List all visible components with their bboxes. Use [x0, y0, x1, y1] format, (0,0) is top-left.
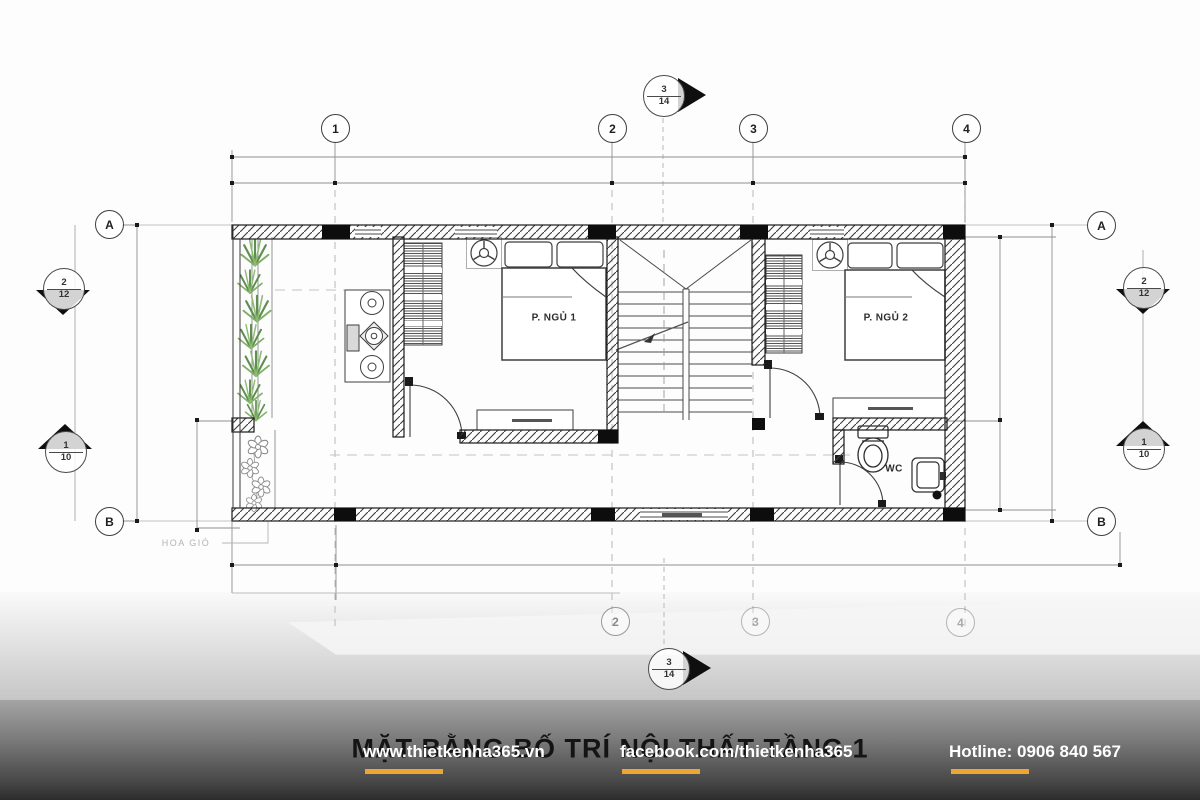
annotation-hoa-gio: HOA GIÓ: [162, 538, 211, 548]
room-label-bedroom2: P. NGỦ 2: [864, 313, 909, 324]
bedroom1-bed: [502, 242, 606, 360]
footer-hotline-text[interactable]: Hotline: 0906 840 567: [949, 742, 1121, 762]
footer-hotline-underline: [951, 769, 1029, 774]
bedroom2-fan: [813, 240, 848, 271]
logo-block: TKN 365 THIETKENHA365.VN HOTLINE:0906840…: [0, 690, 340, 800]
section-number: 3: [666, 657, 671, 669]
footer-facebook-underline: [622, 769, 700, 774]
section-number: 3: [661, 84, 666, 96]
wc-toilet: [858, 426, 888, 472]
grid-bubble-col-4-bottom: 4: [946, 608, 975, 637]
floor-plan-drawing: [0, 0, 1200, 700]
section-sheet: 14: [664, 669, 675, 681]
grid-bubble-col-3: 3: [739, 114, 768, 143]
grid-bubble-row-a-left: A: [95, 210, 124, 239]
grid-bubble-col-1: 1: [321, 114, 350, 143]
section-sheet: 10: [1139, 449, 1150, 461]
bedroom1-door: [405, 377, 466, 439]
dimension-dots: [135, 155, 1122, 567]
bedroom2-door: [764, 360, 824, 420]
section-number: 2: [61, 277, 66, 289]
bedroom2-cabinet: [833, 398, 945, 418]
grid-bubble-row-a-right: A: [1087, 211, 1116, 240]
grid-bubble-row-b-left: B: [95, 507, 124, 536]
grid-bubble-col-2-bottom: 2: [601, 607, 630, 636]
grid-bubble-col-2: 2: [598, 114, 627, 143]
section-number: 2: [1141, 276, 1146, 288]
footer-facebook-link[interactable]: facebook.com/thietkenha365: [620, 742, 852, 762]
section-sheet: 12: [1139, 288, 1150, 300]
side-table: [345, 290, 390, 382]
grid-bubble-row-b-right: B: [1087, 507, 1116, 536]
footer-website-link[interactable]: www.thietkenha365.vn: [363, 742, 545, 762]
section-sheet: 12: [59, 289, 70, 301]
grid-bubble-col-4: 4: [952, 114, 981, 143]
bedroom2-wardrobe: [766, 255, 802, 353]
page: 1 2 3 4 2 3 4 A B A B 314 314 212 110 21…: [0, 0, 1200, 800]
bedroom1-cabinet: [477, 410, 573, 430]
room-label-bedroom1: P. NGỦ 1: [532, 313, 577, 324]
bedroom1-fan: [467, 238, 502, 269]
section-sheet: 10: [61, 452, 72, 464]
section-number: 1: [63, 440, 68, 452]
grid-bubble-col-3-bottom: 3: [741, 607, 770, 636]
wc-sink: [912, 458, 946, 500]
section-sheet: 14: [659, 96, 670, 108]
bedroom1-wardrobe: [404, 243, 442, 345]
flower-bed: [240, 430, 275, 512]
room-label-wc: WC: [885, 464, 902, 475]
staircase: [616, 240, 752, 420]
footer-website-underline: [365, 769, 443, 774]
grid-lines: [335, 118, 965, 646]
section-number: 1: [1141, 437, 1146, 449]
vertical-garden: [238, 237, 272, 421]
bedroom2-bed: [845, 243, 945, 360]
